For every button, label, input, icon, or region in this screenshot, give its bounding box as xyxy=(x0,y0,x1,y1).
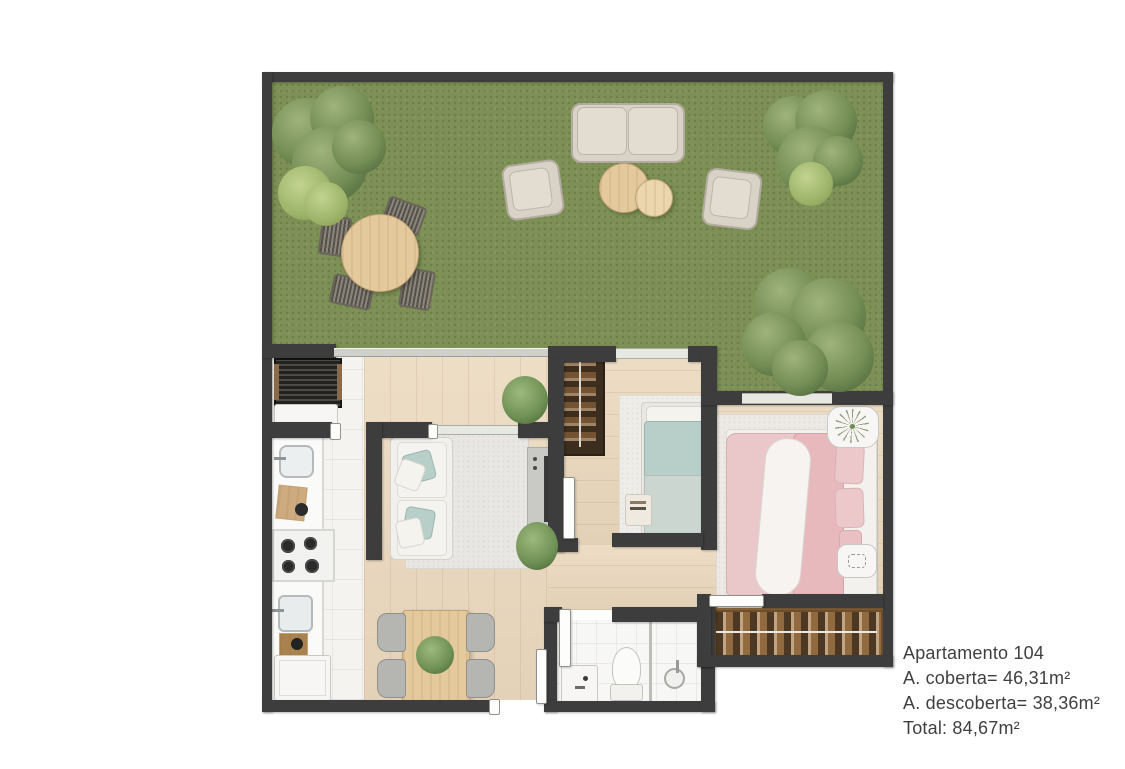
prep-sink xyxy=(278,595,313,632)
floor-plan-image: Apartamento 104 A. coberta= 46,31m² A. d… xyxy=(0,0,1125,769)
master-bed-pillow xyxy=(834,443,865,484)
garden-bush-bottom-right xyxy=(742,268,884,400)
kitchen-divider-door-jamb xyxy=(330,423,341,440)
garden-coffee-table-small xyxy=(635,179,673,217)
living-garden-sliding-door xyxy=(334,348,550,357)
dining-chair xyxy=(466,613,495,652)
master-pouf xyxy=(837,544,877,578)
entry-door-jamb xyxy=(489,699,500,715)
apartment-title: Apartamento 104 xyxy=(903,641,1121,666)
shower-handle xyxy=(676,660,679,673)
hallway-floor xyxy=(548,545,720,610)
barbecue-grill xyxy=(274,358,342,408)
uncovered-area-text: A. descoberta= 38,36m² xyxy=(903,691,1121,716)
wall-bedroom2-left xyxy=(548,360,564,552)
plan-info-label: Apartamento 104 A. coberta= 46,31m² A. d… xyxy=(903,641,1121,741)
wall-left xyxy=(262,72,272,712)
wall-bathroom-bottom xyxy=(544,701,715,712)
toilet xyxy=(612,647,641,689)
bedroom-2-wardrobe xyxy=(558,357,605,456)
total-area-text: Total: 84,67m² xyxy=(903,716,1121,741)
partition-door-jamb xyxy=(428,424,438,439)
wall-bottom-left xyxy=(262,700,496,712)
wall-closet-bottom xyxy=(697,655,893,667)
kettle xyxy=(295,503,308,516)
wall-grill-corner xyxy=(262,344,336,358)
living-partition-window xyxy=(436,425,520,435)
toilet-tank xyxy=(610,684,643,701)
shower-head xyxy=(664,668,685,689)
dining-chair xyxy=(466,659,495,698)
kitchen-cabinet xyxy=(274,655,331,701)
bathroom-door xyxy=(559,609,571,667)
garden-sofa xyxy=(571,103,685,163)
bedroom-2-bedside-books xyxy=(625,494,652,526)
living-room-plant-bottom xyxy=(516,522,558,570)
wall-bedroom2-bottom xyxy=(612,533,703,547)
covered-area-text: A. coberta= 46,31m² xyxy=(903,666,1121,691)
bedroom-2-window xyxy=(616,348,690,359)
coffee-maker xyxy=(291,638,303,650)
garden-armchair-left xyxy=(500,158,565,222)
living-room-plant-top xyxy=(502,376,548,424)
wall-master-left xyxy=(701,346,717,550)
garden-bush-top-left xyxy=(272,86,392,228)
dining-chair xyxy=(377,613,406,652)
wall-kitchen-divider xyxy=(270,422,332,438)
wall-right xyxy=(883,72,893,667)
cooktop-stove xyxy=(272,529,335,582)
dining-centerpiece-plant xyxy=(416,636,454,674)
wall-closet-top xyxy=(762,594,883,608)
dining-chair xyxy=(377,659,406,698)
bathroom-vanity xyxy=(561,665,598,704)
master-closet-clothes xyxy=(714,610,883,657)
bedroom-2-door xyxy=(563,477,575,539)
master-plant-stand xyxy=(827,406,879,448)
garden-armchair-right xyxy=(701,167,764,231)
master-bedroom-door xyxy=(709,595,764,607)
master-bed-pillow xyxy=(834,488,864,529)
garden-bush-top-right xyxy=(763,90,867,208)
wall-garden-top xyxy=(262,72,893,82)
kitchen-sink xyxy=(279,445,314,478)
wall-living-partition-side xyxy=(366,422,382,560)
entry-door xyxy=(536,649,547,704)
shower-glass-partition xyxy=(649,620,652,704)
sofa-pillow xyxy=(394,517,425,550)
